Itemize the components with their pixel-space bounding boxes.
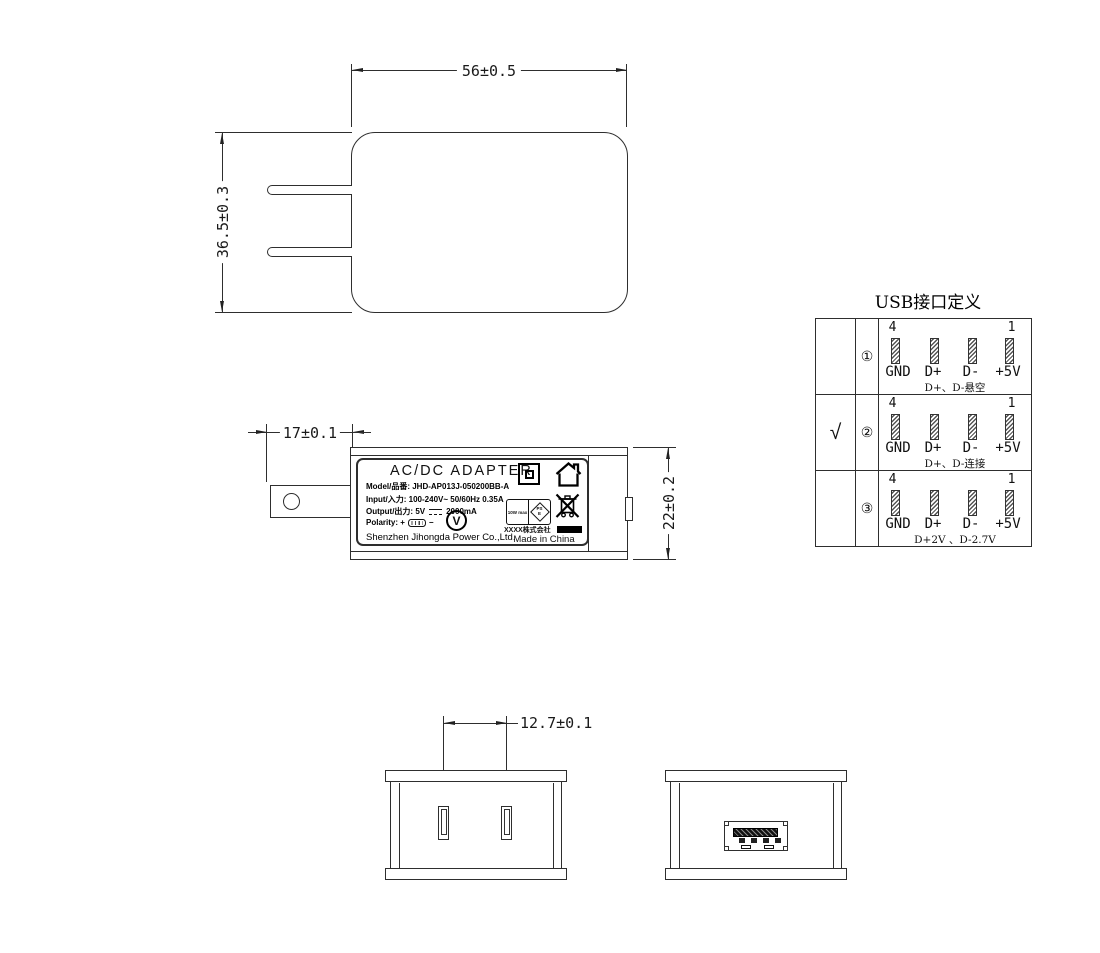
pin-contact-icon — [891, 338, 900, 364]
ext-line — [215, 312, 352, 313]
usb-table-title: USB接口定义 — [838, 288, 1018, 313]
body-seam — [553, 783, 554, 868]
table-row: √ ② 4 1 GND D+ D- +5V D+、D-连接 — [816, 394, 1031, 470]
pin-label-dplus: D+ — [922, 440, 944, 456]
pin-label-dminus: D- — [960, 516, 982, 532]
pin-label-dplus: D+ — [922, 516, 944, 532]
label-origin: Made in China — [501, 534, 587, 545]
label-polarity: Polarity: +− — [366, 518, 434, 527]
engineering-drawing: 56±0.5 36.5±0.3 17±0.1 AC/DC ADAPTER Mod… — [0, 0, 1100, 953]
ext-line — [626, 64, 627, 127]
arrowhead — [616, 68, 627, 72]
ext-line — [351, 64, 352, 127]
ext-line — [633, 559, 676, 560]
label-model: Model/品番: JHD-AP013J-050200BB-A — [366, 481, 509, 492]
arrowhead — [220, 301, 224, 312]
front-width-dimension: 56±0.5 — [457, 63, 521, 80]
port-corner-tab — [724, 821, 729, 826]
pin-label-gnd: GND — [881, 516, 915, 532]
dim-tail — [353, 432, 371, 433]
plug-blade-top — [267, 185, 352, 195]
pin-label-gnd: GND — [881, 440, 915, 456]
leader-line — [507, 723, 518, 724]
side-thickness-dimension: 22±0.2 — [661, 472, 678, 534]
row-check-cell — [816, 471, 856, 546]
usb-tab — [741, 845, 751, 849]
pin-spacing-dimension: 12.7±0.1 — [520, 715, 592, 732]
pin-contact-icon — [1005, 338, 1014, 364]
pin-number-4: 4 — [885, 472, 900, 487]
row-note: D+2V 、D-2.7V — [879, 532, 1031, 547]
pin-contact-icon — [1005, 414, 1014, 440]
arrowhead — [352, 68, 363, 72]
body-seam — [399, 783, 400, 868]
pin-diagram-cell: 4 1 GND D+ D- +5V D+、D-悬空 — [879, 319, 1031, 394]
usb-notch — [625, 497, 633, 521]
pin-contact-icon — [930, 338, 939, 364]
arrowhead — [666, 548, 670, 559]
pin-diagram-cell: 4 1 GND D+ D- +5V D+2V 、D-2.7V — [879, 471, 1031, 546]
pin-number-4: 4 — [885, 396, 900, 411]
usb-tongue — [733, 828, 778, 837]
label-title: AC/DC ADAPTER — [390, 463, 533, 479]
class-ii-icon — [518, 463, 540, 485]
weee-bin-icon — [555, 492, 580, 521]
body-seam — [350, 455, 628, 456]
pin-contact-icon — [968, 490, 977, 516]
blade-length-dimension: 17±0.1 — [280, 425, 340, 442]
pse-diamond-icon: PS E — [529, 500, 550, 524]
usb-pin-table: ① 4 1 GND D+ D- +5V D+、D-悬空 √ ② 4 1 — [815, 318, 1032, 547]
port-corner-tab — [783, 846, 788, 851]
pin-label-5v: +5V — [990, 364, 1026, 380]
black-bar — [557, 526, 582, 533]
port-corner-tab — [783, 821, 788, 826]
indoor-use-icon — [554, 461, 583, 488]
pin-label-5v: +5V — [990, 440, 1026, 456]
usb-tab — [764, 845, 774, 849]
pin-contact-icon — [1005, 490, 1014, 516]
blade-hole — [283, 493, 300, 510]
pin-number-4: 4 — [885, 320, 900, 335]
table-row: ① 4 1 GND D+ D- +5V D+、D-悬空 — [816, 319, 1031, 394]
usb-view-flange-bottom — [665, 868, 847, 880]
front-height-dimension: 36.5±0.3 — [215, 181, 232, 263]
row-index-cell: ② — [856, 395, 879, 470]
body-seam — [833, 783, 834, 868]
usb-contact — [751, 838, 757, 843]
adapter-front-body — [351, 132, 628, 313]
label-input: Input/入力: 100-240V~ 50/60Hz 0.35A — [366, 494, 504, 505]
pin-label-5v: +5V — [990, 516, 1026, 532]
pin-label-dminus: D- — [960, 440, 982, 456]
usb-contact — [775, 838, 781, 843]
pin-contact-icon — [891, 490, 900, 516]
row-note: D+、D-连接 — [879, 456, 1031, 471]
dc-symbol-icon — [429, 509, 442, 515]
pin-contact-icon — [891, 414, 900, 440]
label-company: Shenzhen Jihongda Power Co.,Ltd. — [366, 532, 515, 543]
blade-slot-left — [438, 806, 449, 840]
row-check-cell — [816, 319, 856, 394]
ext-line — [352, 424, 353, 448]
pin-label-dplus: D+ — [922, 364, 944, 380]
pin-contact-icon — [930, 414, 939, 440]
pin-number-1: 1 — [1004, 396, 1019, 411]
pin-contact-icon — [930, 490, 939, 516]
usb-port — [724, 821, 788, 851]
table-row: ③ 4 1 GND D+ D- +5V D+2V 、D-2.7V — [816, 470, 1031, 546]
row-index-cell: ③ — [856, 471, 879, 546]
pin-number-1: 1 — [1004, 320, 1019, 335]
arrowhead — [496, 721, 507, 725]
product-label: AC/DC ADAPTER Model/品番: JHD-AP013J-05020… — [356, 458, 589, 546]
arrowhead — [444, 721, 455, 725]
pin-contact-icon — [968, 414, 977, 440]
plug-blade-bottom — [267, 247, 352, 257]
ext-line — [215, 132, 352, 133]
pse-mark: 10W max PS E — [506, 499, 551, 525]
pin-number-1: 1 — [1004, 472, 1019, 487]
row-check-cell: √ — [816, 395, 856, 470]
micro-usb-icon — [408, 519, 426, 527]
arrowhead — [666, 448, 670, 459]
efficiency-level-v-icon: V — [446, 510, 467, 531]
pin-contact-icon — [968, 338, 977, 364]
bottom-view-flange-bottom — [385, 868, 567, 880]
pse-left-cell: 10W max — [507, 500, 529, 524]
row-index-cell: ① — [856, 319, 879, 394]
port-corner-tab — [724, 846, 729, 851]
pin-label-dminus: D- — [960, 364, 982, 380]
arrowhead — [220, 133, 224, 144]
body-seam — [350, 551, 628, 552]
pin-diagram-cell: 4 1 GND D+ D- +5V D+、D-连接 — [879, 395, 1031, 470]
bottom-view-body — [390, 781, 562, 869]
blade-slot-right — [501, 806, 512, 840]
usb-contact — [763, 838, 769, 843]
usb-contact — [739, 838, 745, 843]
row-note: D+、D-悬空 — [879, 380, 1031, 395]
pin-label-gnd: GND — [881, 364, 915, 380]
body-seam — [679, 783, 680, 868]
